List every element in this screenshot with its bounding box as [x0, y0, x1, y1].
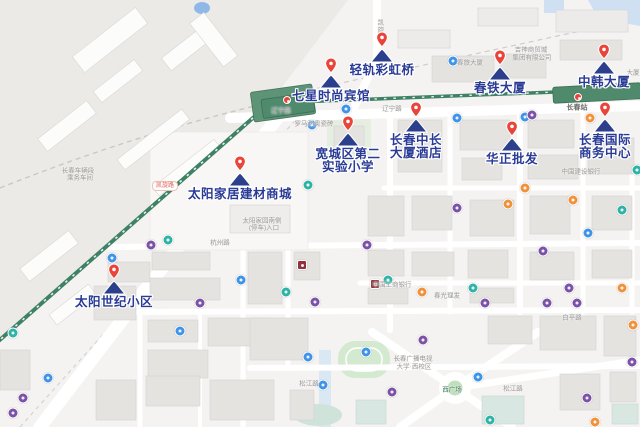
poi-label-huazheng-pifa[interactable]: 华正批发 — [486, 153, 538, 166]
poi-pin-icon — [591, 42, 617, 76]
poi-marker-taiyang-jiaju-jiancai-shangcheng[interactable] — [227, 154, 253, 188]
poi-marker-huazheng-pifa[interactable] — [499, 119, 525, 153]
poi-pin-icon — [318, 56, 344, 90]
poi-marker-qinggui-caihongqiao[interactable] — [369, 30, 395, 64]
poi-label-zhonghan-dasha[interactable]: 中韩大厦 — [578, 76, 630, 89]
poi-label-chuntie-dasha[interactable]: 春铁大厦 — [474, 82, 526, 95]
poi-label-qixing-shishang-binguan[interactable]: 七星时尚宾馆 — [292, 90, 370, 103]
poi-pin-icon — [403, 100, 429, 134]
poi-marker-zhonghan-dasha[interactable] — [591, 42, 617, 76]
poi-pin-icon — [592, 100, 618, 134]
poi-pin-icon — [101, 262, 127, 296]
poi-label-qinggui-caihongqiao[interactable]: 轻轨彩虹桥 — [349, 64, 414, 77]
poi-label-changchun-zhongchang-dasha-jiudian[interactable]: 长春中长大厦酒店 — [390, 134, 442, 160]
poi-markers-layer: 轻轨彩虹桥七星时尚宾馆春铁大厦中韩大厦宽城区第二实验小学长春中长大厦酒店华正批发… — [0, 0, 640, 427]
poi-pin-icon — [499, 119, 525, 153]
poi-marker-changchun-zhongchang-dasha-jiudian[interactable] — [403, 100, 429, 134]
poi-label-kuanchengqu-dier-shiyan-xiaoxue[interactable]: 宽城区第二实验小学 — [315, 148, 380, 174]
poi-marker-taiyang-shiji-xiaoqu[interactable] — [101, 262, 127, 296]
poi-pin-icon — [487, 48, 513, 82]
poi-pin-icon — [335, 114, 361, 148]
poi-marker-chuntie-dasha[interactable] — [487, 48, 513, 82]
poi-label-taiyang-shiji-xiaoqu[interactable]: 太阳世纪小区 — [75, 296, 153, 309]
poi-marker-qixing-shishang-binguan[interactable] — [318, 56, 344, 90]
poi-pin-icon — [369, 30, 395, 64]
poi-label-changchun-guoji-shangwu-zhongxin[interactable]: 长春国际商务中心 — [579, 134, 631, 160]
poi-pin-icon — [227, 154, 253, 188]
poi-label-taiyang-jiaju-jiancai-shangcheng[interactable]: 太阳家居建材商城 — [188, 188, 292, 201]
map-canvas[interactable]: 辽宁路辽宁路长春站凯旋路凯旋路杭州路白平路松江路松江路西广场春旅大厦大厦吉神商贸… — [0, 0, 640, 427]
poi-marker-changchun-guoji-shangwu-zhongxin[interactable] — [592, 100, 618, 134]
poi-marker-kuanchengqu-dier-shiyan-xiaoxue[interactable] — [335, 114, 361, 148]
